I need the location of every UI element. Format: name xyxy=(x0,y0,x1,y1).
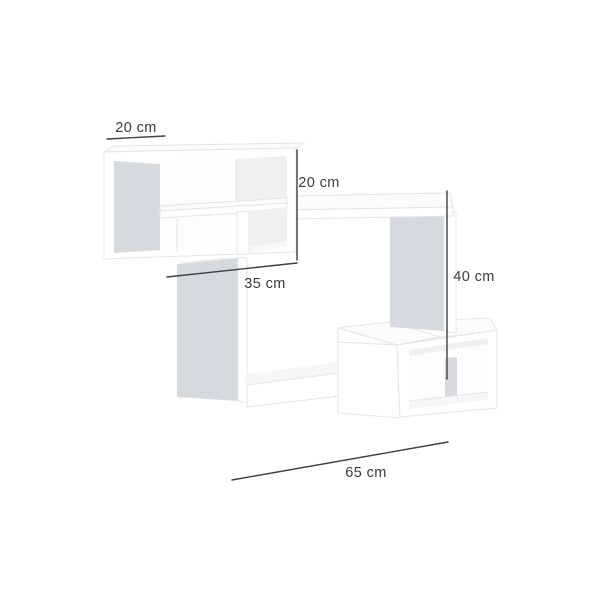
dimension-label-top-depth: 20 cm xyxy=(115,120,157,136)
dimension-label-main-width: 65 cm xyxy=(345,465,387,481)
dimension-label-top-height: 20 cm xyxy=(298,175,340,191)
right-box-left-side-panel xyxy=(338,342,400,418)
long-shelf xyxy=(290,193,453,219)
dimension-top-depth: 20 cm xyxy=(107,120,165,139)
main-frame-bottom-rail xyxy=(247,362,340,407)
upper-box-upper-right-shade xyxy=(236,156,287,204)
main-frame-right-member xyxy=(390,212,456,333)
upper-box-through-post xyxy=(237,211,249,254)
dimension-line-main-width xyxy=(232,442,448,480)
dimension-label-top-width: 35 cm xyxy=(244,276,286,292)
dimension-label-main-height: 40 cm xyxy=(453,269,495,285)
left-panel-side-face xyxy=(177,258,238,401)
dimension-diagram: 20 cm 20 cm 35 cm 40 cm 65 cm xyxy=(0,0,600,600)
upper-box-left-inner-face xyxy=(114,161,160,253)
upper-box xyxy=(104,143,304,259)
right-member-side-face xyxy=(390,213,444,331)
main-frame-left-panel xyxy=(177,257,247,403)
dimension-main-width: 65 cm xyxy=(232,442,448,481)
dimension-line-top-depth xyxy=(107,136,165,139)
shelf-diagram-canvas: 20 cm 20 cm 35 cm 40 cm 65 cm xyxy=(0,0,600,600)
